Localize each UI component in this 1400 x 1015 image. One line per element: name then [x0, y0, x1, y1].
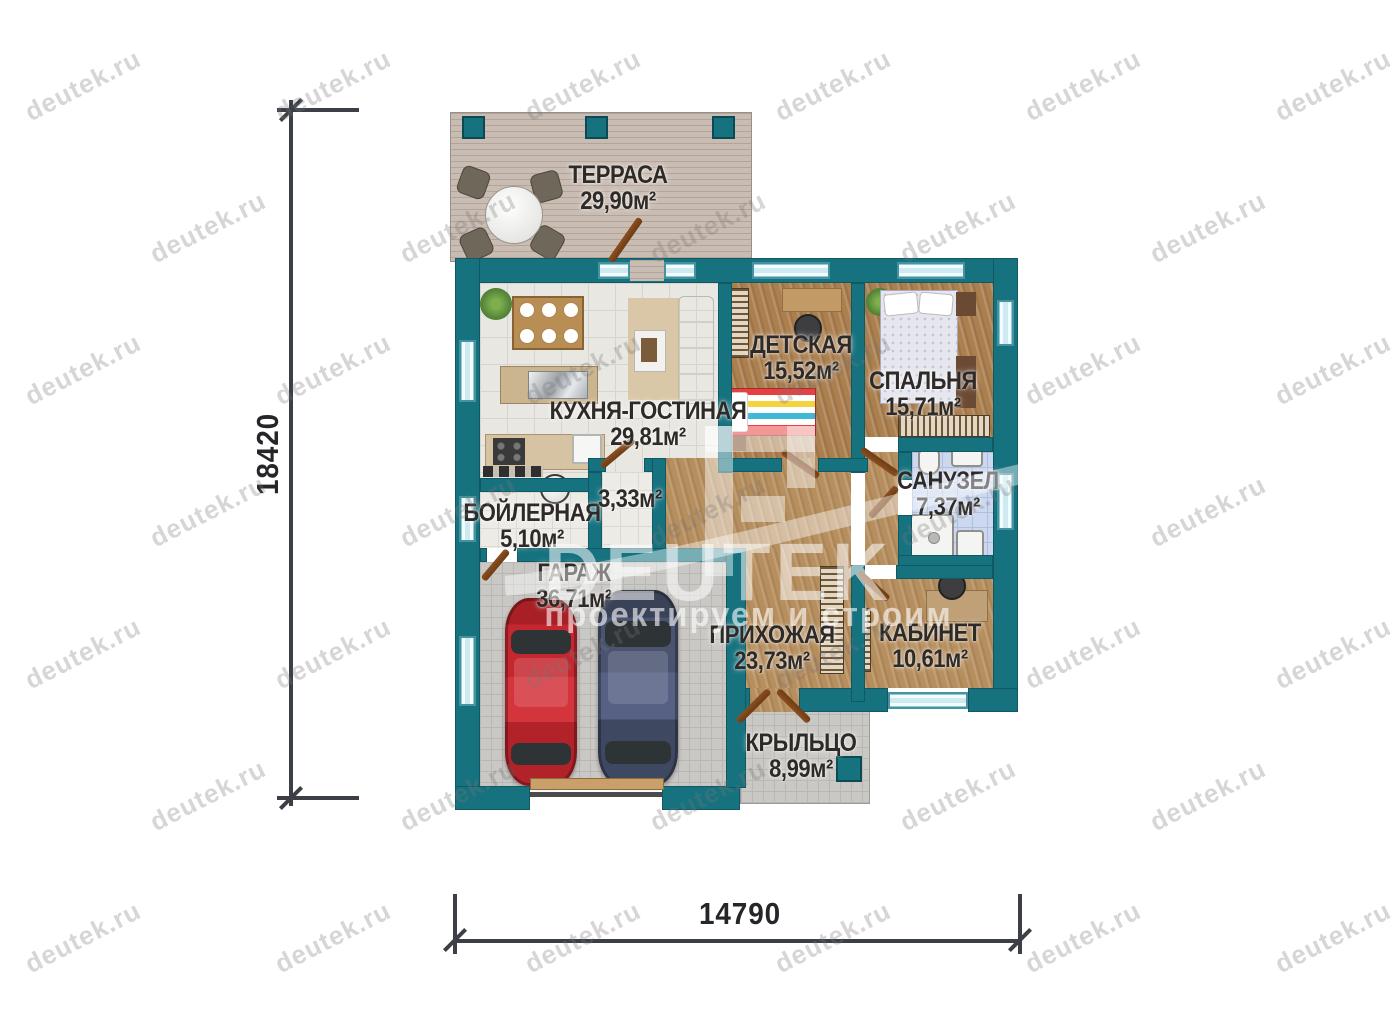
room-label-bedroom: СПАЛЬНЯ 15,71м²	[861, 368, 984, 420]
car-rear-window	[605, 741, 671, 765]
watermark-text: deutek.ru	[1395, 469, 1400, 554]
watermark-text: deutek.ru	[1270, 895, 1396, 980]
horizontal-dimension-line	[455, 939, 1022, 943]
watermark-text: deutek.ru	[1395, 753, 1400, 838]
desk	[782, 288, 842, 312]
watermark-text: deutek.ru	[1145, 753, 1271, 838]
children-hall-wall	[818, 458, 868, 472]
pillow	[918, 292, 954, 317]
terrace-doorway	[630, 260, 664, 281]
watermark-text: deutek.ru	[20, 43, 146, 128]
red-car	[505, 598, 577, 786]
room-label-porch: КРЫЛЬЦО 8,99м²	[731, 730, 872, 782]
window	[752, 262, 830, 279]
window	[459, 636, 476, 706]
car-roof	[514, 658, 567, 707]
window	[664, 262, 696, 279]
watermark-text: deutek.ru	[1395, 185, 1400, 270]
garage-wall-bottom	[662, 786, 740, 810]
car-roof	[608, 651, 667, 704]
watermark-text: deutek.ru	[1270, 611, 1396, 696]
watermark-text: deutek.ru	[145, 753, 271, 838]
plate	[519, 328, 535, 344]
window	[997, 300, 1014, 346]
watermark-text: deutek.ru	[1020, 895, 1146, 980]
watermark-text: deutek.ru	[20, 327, 146, 412]
plate	[563, 328, 579, 344]
plate	[563, 302, 579, 318]
room-label-hallway: ПРИХОЖАЯ 23,73м²	[702, 622, 843, 674]
horizontal-dimension-label: 14790	[650, 896, 830, 932]
watermark-text: deutek.ru	[895, 753, 1021, 838]
outer-wall-bottom	[968, 688, 1018, 712]
office-top-wall	[896, 565, 993, 579]
car-rear-window	[511, 743, 570, 766]
nightstand	[956, 292, 976, 316]
plate	[541, 328, 557, 344]
window	[598, 262, 630, 279]
sofa	[678, 296, 714, 404]
horizontal-dim-extension-left	[453, 894, 457, 954]
watermark-text: deutek.ru	[770, 43, 896, 128]
watermark-text: deutek.ru	[1270, 327, 1396, 412]
watermark-text: deutek.ru	[1145, 185, 1271, 270]
car-windshield	[605, 621, 671, 646]
kitchen-sink	[528, 371, 588, 399]
watermark-text: deutek.ru	[1020, 327, 1146, 412]
hall-office-wall	[851, 565, 865, 702]
garage-wall-bottom	[455, 786, 530, 810]
shower-drain	[928, 532, 940, 544]
children-hall-wall	[718, 458, 782, 472]
kitchen-boiler-wall	[480, 478, 602, 492]
kitchen-cabinet-row	[483, 466, 543, 477]
blue-car	[598, 590, 678, 786]
bathroom-top-wall	[898, 437, 993, 452]
coffee-table-top	[641, 338, 657, 362]
plate	[541, 302, 557, 318]
watermark-text: deutek.ru	[1020, 611, 1146, 696]
room-label-bathroom: САНУЗЕЛ 7,37м²	[895, 468, 1001, 520]
watermark-text: deutek.ru	[20, 611, 146, 696]
window	[888, 692, 968, 709]
stove	[493, 438, 525, 465]
watermark-text: deutek.ru	[1020, 43, 1146, 128]
watermark-text: deutek.ru	[1270, 43, 1396, 128]
terrace-post	[712, 116, 735, 139]
watermark-text: deutek.ru	[1145, 469, 1271, 554]
garage-door	[530, 778, 664, 790]
watermark-text: deutek.ru	[20, 895, 146, 980]
terrace-post	[585, 116, 608, 139]
room-label-garage: ГАРАЖ 36,71м²	[504, 560, 645, 612]
horizontal-dim-extension-right	[1018, 894, 1022, 954]
window	[459, 340, 476, 402]
room-label-children: ДЕТСКАЯ 15,52м²	[739, 332, 862, 384]
floor-plan-canvas: 18420 14790	[0, 0, 1400, 1015]
room-label-terrace: ТЕРРАСА 29,90м²	[530, 162, 706, 214]
room-label-office: КАБИНЕТ 10,61м²	[868, 620, 991, 672]
window	[897, 262, 965, 279]
watermark-text: deutek.ru	[520, 895, 646, 980]
room-label-kitchen-living: КУХНЯ-ГОСТИНАЯ 29,81м²	[542, 398, 753, 450]
washing-machine	[956, 530, 984, 558]
outer-wall-bottom	[799, 688, 888, 712]
car-windshield	[511, 630, 570, 654]
room-label-boiler: БОЙЛЕРНАЯ 5,10м²	[462, 500, 603, 552]
garage-door-line	[530, 792, 662, 797]
vertical-dimension-line	[289, 100, 293, 806]
terrace-post	[462, 116, 485, 139]
plant	[480, 288, 512, 320]
pillow	[883, 291, 919, 316]
room-label-storage: 3,33м²	[586, 486, 674, 512]
vertical-dimension-label: 18420	[250, 364, 286, 544]
watermark-text: deutek.ru	[145, 185, 271, 270]
watermark-text: deutek.ru	[270, 895, 396, 980]
plate	[519, 302, 535, 318]
